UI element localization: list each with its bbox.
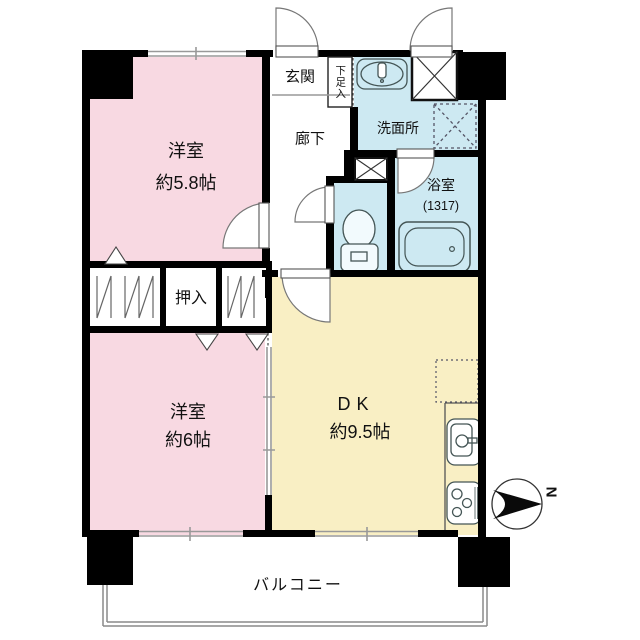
toilet-door-leaf [325,186,334,223]
western-room-2-label: 洋室 [170,403,206,421]
meter-box-door-leaf [411,46,452,57]
washroom-floor-2 [412,100,478,153]
dk-size: 約9.5帖 [329,423,390,441]
kitchen-sink-icon [447,419,481,465]
stove-icon [447,482,481,524]
dk-door-leaf [281,269,330,278]
compass-icon [492,479,542,529]
balcony-label: バルコニー [253,578,343,594]
toilet-icon [341,210,378,271]
entrance-label: 玄関 [285,70,315,85]
bathroom-label: 浴室 [427,178,455,192]
compass-north-label: N [544,487,559,498]
floor-plan-drawing [0,0,640,640]
western-room-2-size: 約6帖 [165,431,211,449]
floor-plan: 洋室 約5.8帖 玄関 下足入 廊下 洗面所 浴室 (1317) 押入 洋室 約… [0,0,640,640]
western-room-1-label: 洋室 [168,142,204,160]
entrance-door-leaf [276,46,318,57]
pipe-shaft [355,158,387,180]
washroom-label: 洗面所 [377,121,419,135]
dk-label: DK [337,395,374,413]
corner-column [457,52,506,100]
corner-column [87,537,133,585]
entrance-door-swing [276,8,318,50]
corner-column [82,50,133,99]
corner-column [458,537,510,587]
meter-box-door-swing [410,8,452,50]
closet-label: 押入 [175,291,207,307]
bathroom-door-leaf [397,149,434,158]
western-room-1-size: 約5.8帖 [155,174,216,192]
meter-box [412,52,457,100]
bathroom-size: (1317) [423,200,459,213]
hallway-label: 廊下 [295,132,325,147]
western-room-1-door-leaf [259,203,269,248]
shoe-storage-label: 下足入 [335,65,346,100]
